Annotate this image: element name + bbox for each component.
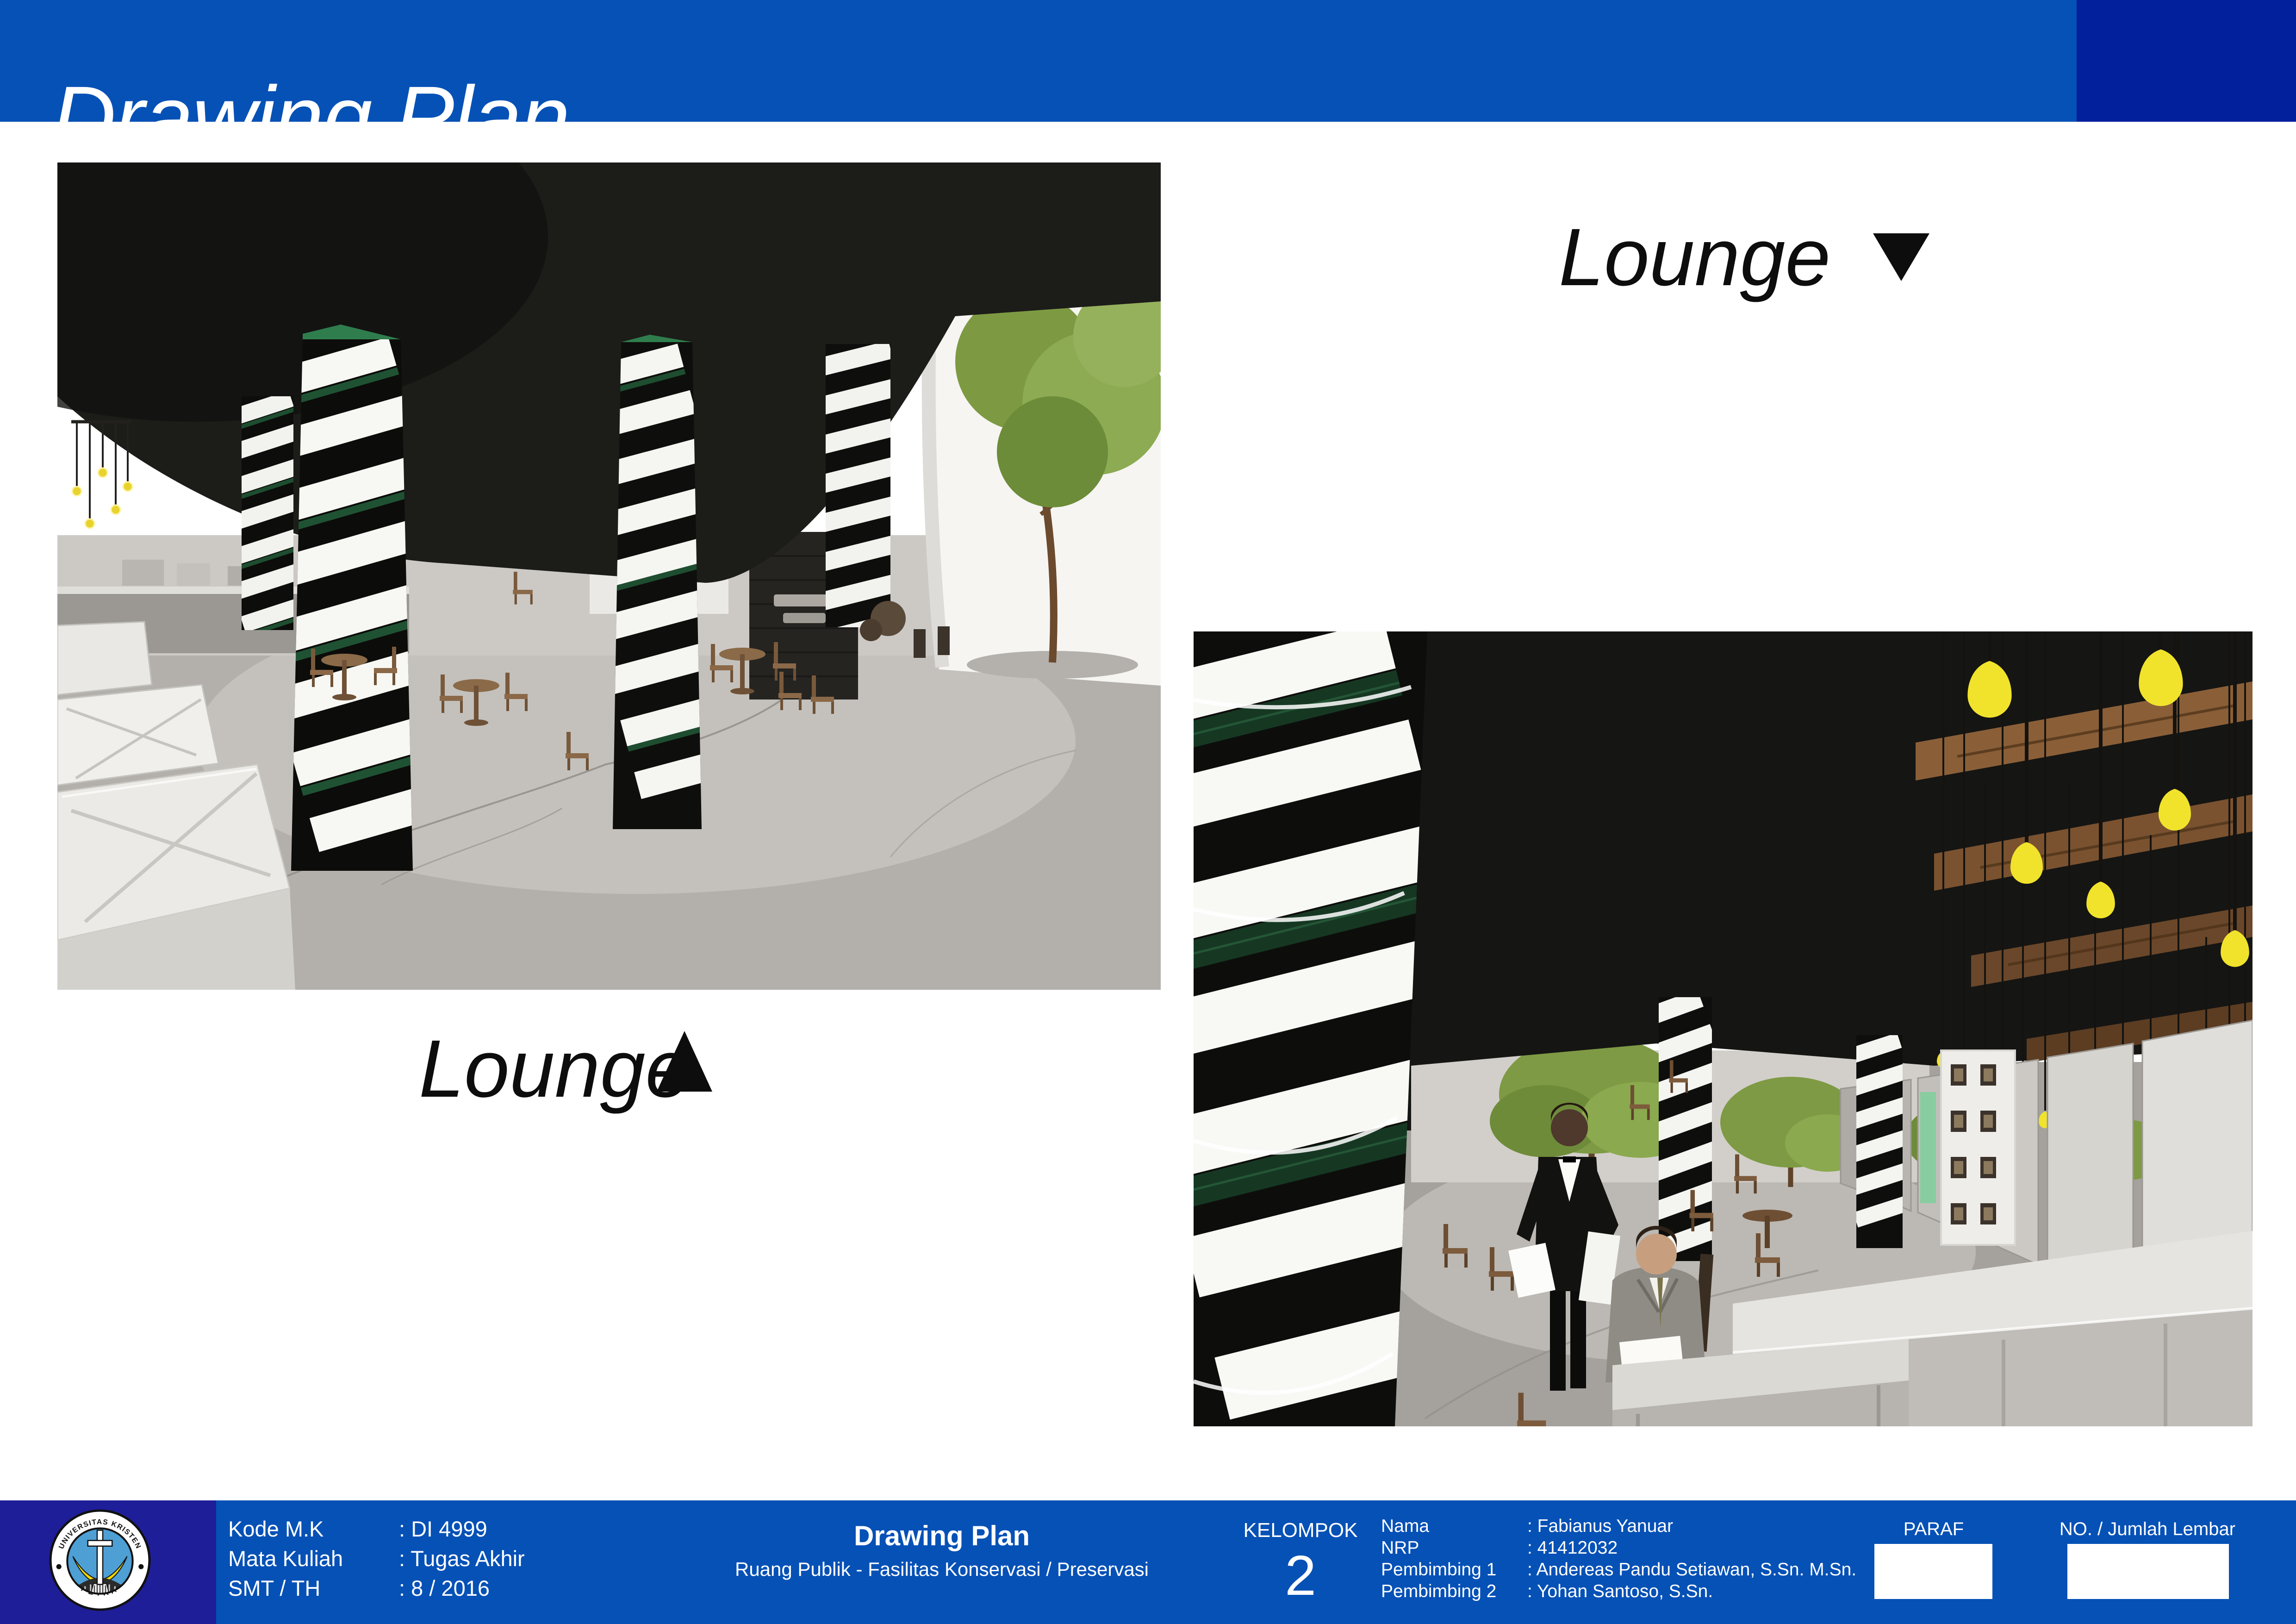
title-block: UNIVERSITAS KRISTEN PETRA bbox=[0, 1500, 2296, 1624]
render-lounge-interior bbox=[57, 162, 1161, 990]
course-info-labels: Kode M.K Mata Kuliah SMT / TH bbox=[228, 1514, 343, 1603]
course-row-label: Kode M.K bbox=[228, 1514, 343, 1544]
green-glass-column bbox=[1920, 1092, 1936, 1203]
course-info-values: : DI 4999 : Tugas Akhir : 8 / 2016 bbox=[399, 1514, 525, 1603]
people-row-value: : Yohan Santoso, S.Sn. bbox=[1527, 1580, 1856, 1602]
course-row-value: : 8 / 2016 bbox=[399, 1574, 525, 1603]
people-row-label: Pembimbing 2 bbox=[1381, 1580, 1496, 1602]
paraf-label: PARAF bbox=[1887, 1519, 1980, 1540]
paraf-signature-box bbox=[1874, 1544, 1992, 1599]
caption-lounge-right: Lounge bbox=[1559, 211, 1830, 304]
group-label: KELOMPOK bbox=[1222, 1519, 1379, 1542]
people-row-value: : Andereas Pandu Setiawan, S.Sn. M.Sn. bbox=[1527, 1559, 1856, 1580]
header-accent-block bbox=[2077, 0, 2296, 122]
photo-display-panel bbox=[1941, 1050, 2015, 1245]
people-row-label: Pembimbing 1 bbox=[1381, 1559, 1496, 1580]
sheet-title: Drawing Plan bbox=[699, 1520, 1185, 1552]
people-info-values: : Fabianus Yanuar : 41412032 : Andereas … bbox=[1527, 1515, 1856, 1602]
triangle-down-icon bbox=[1873, 233, 1929, 281]
sheet-number-box bbox=[2067, 1544, 2229, 1599]
people-row-value: : 41412032 bbox=[1527, 1537, 1856, 1559]
people-row-label: Nama bbox=[1381, 1515, 1496, 1537]
course-row-value: : DI 4999 bbox=[399, 1514, 525, 1544]
group-number: 2 bbox=[1222, 1543, 1379, 1608]
course-row-value: : Tugas Akhir bbox=[399, 1544, 525, 1574]
people-row-value: : Fabianus Yanuar bbox=[1527, 1515, 1856, 1537]
group-block: KELOMPOK 2 bbox=[1222, 1500, 1379, 1608]
sheet-subtitle: Ruang Publik - Fasilitas Konservasi / Pr… bbox=[699, 1558, 1185, 1580]
header-bar: Drawing Plan bbox=[0, 0, 2296, 122]
sheet-number-label: NO. / Jumlah Lembar bbox=[2036, 1519, 2259, 1540]
people-info-labels: Nama NRP Pembimbing 1 Pembimbing 2 bbox=[1381, 1515, 1496, 1602]
people-row-label: NRP bbox=[1381, 1537, 1496, 1559]
presentation-sheet: Drawing Plan bbox=[0, 0, 2296, 1624]
course-row-label: SMT / TH bbox=[228, 1574, 343, 1603]
render-lounge-terrace bbox=[1194, 631, 2252, 1426]
sheet-title-block: Drawing Plan Ruang Publik - Fasilitas Ko… bbox=[699, 1500, 1185, 1624]
triangle-up-icon bbox=[657, 1031, 712, 1092]
caption-lounge-left: Lounge bbox=[419, 1022, 691, 1116]
course-row-label: Mata Kuliah bbox=[228, 1544, 343, 1574]
university-logo: UNIVERSITAS KRISTEN PETRA bbox=[49, 1509, 151, 1612]
page-title: Drawing Plan bbox=[52, 66, 569, 169]
